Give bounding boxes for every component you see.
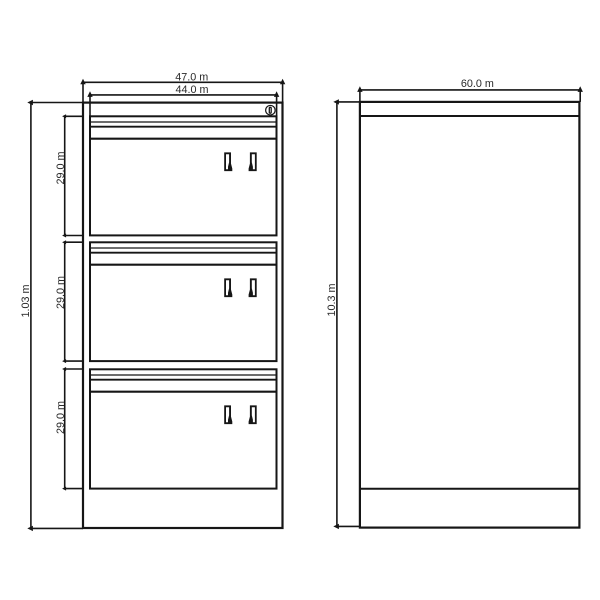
svg-text:10.3 m: 10.3 m [326, 283, 338, 316]
svg-text:44.0 m: 44.0 m [175, 84, 208, 96]
svg-text:60.0 m: 60.0 m [461, 78, 494, 90]
svg-text:1.03 m: 1.03 m [20, 284, 32, 317]
svg-text:29.0 m: 29.0 m [55, 151, 67, 184]
svg-text:29.0 m: 29.0 m [55, 276, 67, 309]
svg-text:47.0 m: 47.0 m [175, 72, 208, 84]
svg-text:29.0 m: 29.0 m [55, 401, 67, 434]
